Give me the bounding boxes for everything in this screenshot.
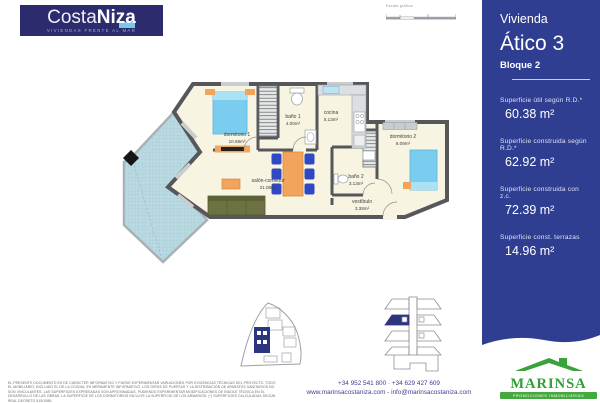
area-value: 62.92 m² bbox=[500, 155, 590, 169]
marinsa-logo: MARINSA PROMOCIONES INMOBILIARIAS bbox=[500, 356, 597, 399]
room-label-vestibulo: vestíbulo bbox=[352, 199, 372, 205]
room-area-bano-1: 4.00m² bbox=[286, 121, 301, 126]
unit-info-panel: Vivienda Ático 3 Bloque 2 Superficie úti… bbox=[482, 0, 600, 352]
area-value: 72.39 m² bbox=[500, 203, 590, 217]
contact-phones: +34 952 541 800 · +34 629 427 609 bbox=[303, 380, 475, 387]
panel-divider bbox=[512, 79, 590, 80]
panel-wave-decoration bbox=[482, 331, 600, 353]
scale-bar-graphic bbox=[386, 12, 456, 21]
unit-name: Ático 3 bbox=[500, 32, 590, 56]
toilet-icon bbox=[290, 88, 304, 105]
room-area-salon-comedor: 21.08m² bbox=[260, 185, 277, 190]
brochure-page: CostaNiza VIVIENDAS FRENTE AL MAR Escala… bbox=[0, 0, 600, 400]
costa-niza-logo: CostaNiza VIVIENDAS FRENTE AL MAR bbox=[20, 5, 163, 36]
area-item: Superficie construida según R.D.* 62.92 … bbox=[500, 138, 590, 169]
room-area-vestibulo: 3.38m² bbox=[355, 206, 370, 211]
area-value: 14.96 m² bbox=[500, 244, 590, 258]
area-item: Superficie construida con z.c. 72.39 m² bbox=[500, 186, 590, 217]
marinsa-name: MARINSA bbox=[500, 377, 597, 391]
toilet-icon bbox=[334, 174, 348, 184]
area-label: Superficie construida con z.c. bbox=[500, 186, 590, 200]
room-area-cocina: 5.13m² bbox=[324, 117, 339, 122]
floor-plan: dormitorio 1 10.68m² baño 1 4.00m² cocin… bbox=[65, 72, 475, 307]
room-label-cocina: cocina bbox=[324, 110, 339, 116]
sofa-icon bbox=[208, 196, 265, 215]
room-area-dormitorio-1: 10.68m² bbox=[229, 139, 246, 144]
scale-bar: Escala gráfica bbox=[386, 4, 458, 26]
room-label-bano-1: baño 1 bbox=[285, 114, 301, 120]
block-plan-thumbnail bbox=[380, 295, 446, 373]
brand-name-bold: Niza bbox=[97, 7, 136, 28]
room-label-dormitorio-1: dormitorio 1 bbox=[224, 132, 251, 138]
unit-type-label: Vivienda bbox=[500, 12, 590, 26]
roof-icon bbox=[509, 356, 589, 372]
sink-icon bbox=[305, 130, 316, 144]
brand-tagline: VIVIENDAS FRENTE AL MAR bbox=[20, 28, 163, 33]
scale-bar-label: Escala gráfica bbox=[386, 4, 458, 8]
room-label-bano-2: baño 2 bbox=[348, 174, 364, 180]
area-label: Superficie construida según R.D.* bbox=[500, 138, 590, 152]
room-area-bano-2: 3.13m² bbox=[349, 181, 364, 186]
highlighted-block bbox=[254, 327, 270, 353]
area-label: Superficie const. terrazas bbox=[500, 234, 590, 241]
marinsa-tagline: PROMOCIONES INMOBILIARIAS bbox=[500, 392, 597, 399]
area-item: Superficie const. terrazas 14.96 m² bbox=[500, 234, 590, 258]
area-item: Superficie útil según R.D.* 60.38 m² bbox=[500, 97, 590, 121]
site-plan-thumbnail bbox=[238, 300, 310, 368]
area-value: 60.38 m² bbox=[500, 107, 590, 121]
room-area-dormitorio-2: 8.09m² bbox=[396, 141, 411, 146]
coffee-table-icon bbox=[222, 179, 240, 189]
area-label: Superficie útil según R.D.* bbox=[500, 97, 590, 104]
room-label-salon-comedor: salón-comedor bbox=[251, 178, 284, 184]
brand-name: CostaNiza bbox=[20, 8, 163, 27]
contact-block: +34 952 541 800 · +34 629 427 609 www.ma… bbox=[303, 380, 475, 396]
closet-icon bbox=[383, 123, 417, 130]
sink-icon bbox=[363, 151, 375, 160]
brand-name-regular: Costa bbox=[47, 7, 97, 28]
room-label-dormitorio-2: dormitorio 2 bbox=[390, 134, 417, 140]
contact-web: www.marinsacostaniza.com - info@marinsac… bbox=[303, 389, 475, 396]
unit-block-label: Bloque 2 bbox=[500, 60, 590, 71]
dining-table-icon bbox=[283, 152, 303, 196]
